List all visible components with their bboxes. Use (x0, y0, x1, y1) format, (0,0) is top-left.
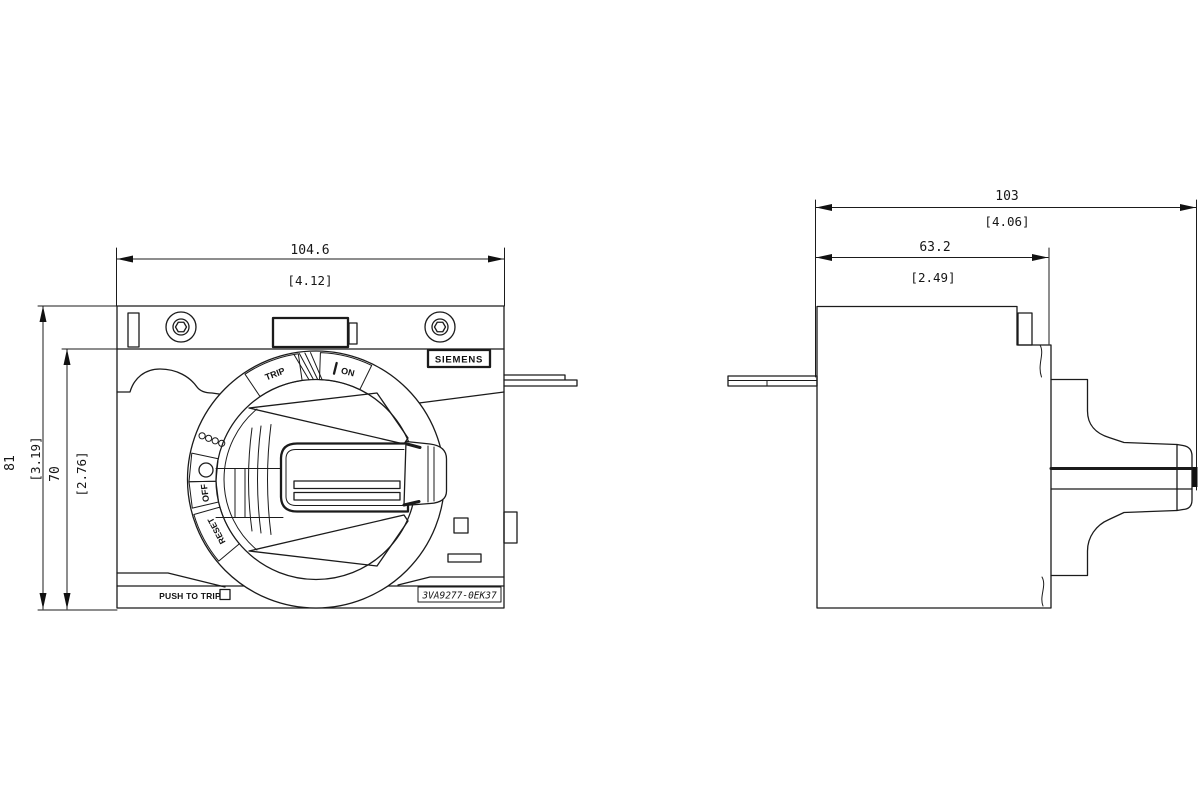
rotary-handle-bezel: ON TRIP OFF RESET (188, 351, 447, 608)
part-number: 3VA9277-0EK37 (421, 591, 497, 602)
knob-profile-upper (1051, 380, 1177, 445)
side-clip-tab (504, 512, 517, 543)
push-to-trip-label: PUSH TO TRIP (159, 591, 221, 601)
dim-depth-body-mm: 63.2 (919, 240, 950, 255)
side-top-clip (1018, 313, 1032, 345)
grip-groove-top (294, 481, 400, 489)
front-view: 104.6 [4.12] 81 [3.19] 70 [2.76] (3, 243, 577, 610)
dim-depth-body-inch: [2.49] (910, 270, 955, 285)
dimension-height-total: 81 [3.19] (3, 306, 117, 610)
dim-arrow-left (117, 256, 133, 263)
dim-depth-total-inch: [4.06] (984, 214, 1029, 229)
dimension-width: 104.6 [4.12] (117, 243, 505, 306)
brand-label: SIEMENS (435, 355, 483, 366)
dim-width-mm: 104.6 (290, 243, 329, 258)
dimension-height-body: 70 [2.76] (48, 349, 117, 609)
part-number-box: 3VA9277-0EK37 (418, 587, 501, 602)
push-to-trip: PUSH TO TRIP (159, 590, 230, 602)
shaft-end-cap (1193, 467, 1198, 487)
dim-height-total-inch: [3.19] (28, 436, 43, 481)
technical-drawing-page: 104.6 [4.12] 81 [3.19] 70 [2.76] (0, 0, 1200, 800)
dim-height-body-mm: 70 (48, 466, 63, 482)
handle-grip (281, 444, 408, 512)
grip-groove-bottom (294, 493, 400, 501)
dim-arrow-right (488, 256, 504, 263)
knob-profile-lower (1051, 511, 1177, 576)
dim-height-total-mm: 81 (3, 455, 18, 471)
dim-height-body-inch: [2.76] (74, 451, 89, 496)
handle-nose (404, 442, 447, 506)
side-body (817, 307, 1051, 609)
brand-badge: SIEMENS (428, 350, 490, 367)
knob-profile (1051, 380, 1198, 576)
dim-depth-total-mm: 103 (995, 189, 1018, 204)
shaft-tab-front (504, 375, 577, 386)
rotary-operator-drawing: 104.6 [4.12] 81 [3.19] 70 [2.76] (0, 0, 1200, 800)
side-view: 103 [4.06] 63.2 [2.49] (728, 189, 1198, 608)
knob-tip (1177, 445, 1192, 511)
dim-width-inch: [4.12] (287, 273, 332, 288)
shaft-tab-side (728, 376, 817, 386)
